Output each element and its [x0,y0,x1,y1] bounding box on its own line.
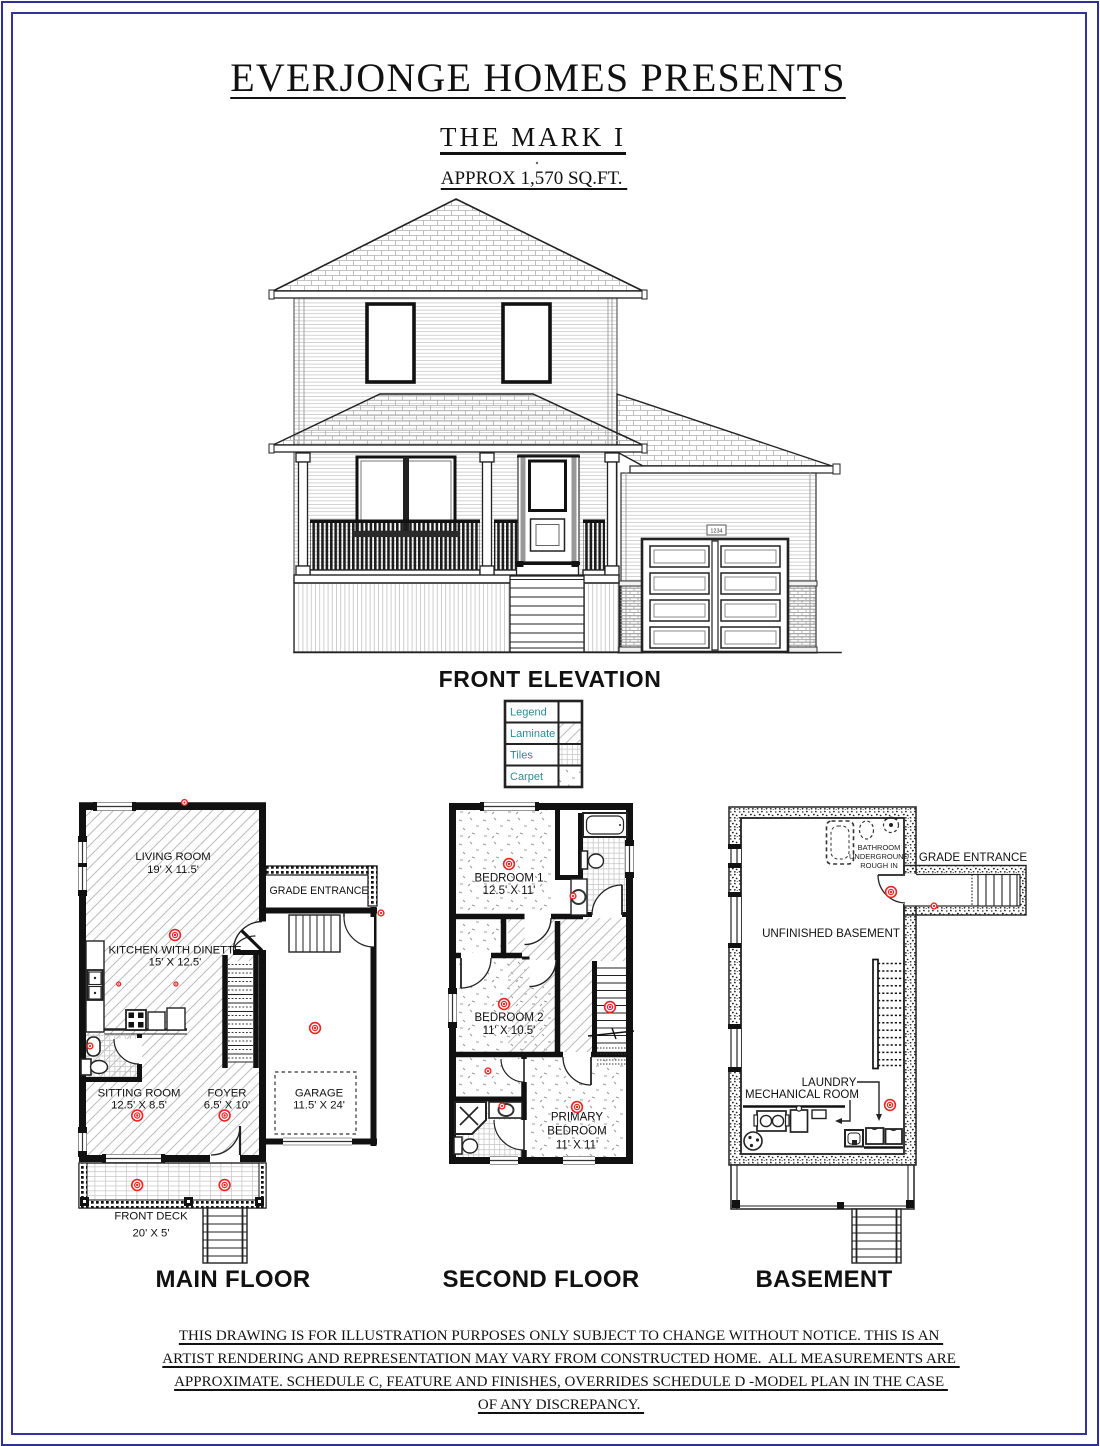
svg-text:BATHROOM: BATHROOM [858,843,901,852]
svg-text:BEDROOM 2: BEDROOM 2 [474,1012,543,1024]
svg-text:11' X 11': 11' X 11' [556,1140,598,1152]
svg-text:SITTING ROOM: SITTING ROOM [98,1088,181,1100]
svg-text:UNDERGROUND: UNDERGROUND [849,852,910,861]
svg-text:Laminate: Laminate [510,728,555,740]
svg-text:FRONT DECK: FRONT DECK [114,1211,188,1223]
svg-text:12.5' X 11': 12.5' X 11' [483,885,536,897]
svg-text:15' X 12.5': 15' X 12.5' [149,957,202,969]
svg-text:PRIMARY: PRIMARY [551,1112,604,1124]
svg-text:Legend: Legend [510,707,547,719]
svg-text:GRADE ENTRANCE: GRADE ENTRANCE [270,885,369,897]
svg-text:GARAGE: GARAGE [295,1088,344,1100]
svg-text:Tiles: Tiles [510,750,533,762]
svg-text:UNFINISHED BASEMENT: UNFINISHED BASEMENT [762,927,900,940]
svg-text:Carpet: Carpet [510,771,543,783]
svg-text:MECHANICAL ROOM: MECHANICAL ROOM [745,1089,859,1101]
svg-text:20' X 5': 20' X 5' [133,1228,170,1240]
svg-text:LIVING ROOM: LIVING ROOM [135,851,210,863]
svg-text:KITCHEN WITH DINETTE: KITCHEN WITH DINETTE [108,945,242,957]
svg-text:6.5' X 10': 6.5' X 10' [204,1100,250,1112]
svg-text:11.5' X 24': 11.5' X 24' [293,1100,345,1112]
svg-text:19' X 11.5': 19' X 11.5' [147,864,199,876]
svg-text:LAUNDRY: LAUNDRY [802,1077,857,1089]
svg-text:1234: 1234 [710,529,722,535]
svg-text:11' X 10.5': 11' X 10.5' [483,1025,536,1037]
svg-text:BEDROOM: BEDROOM [547,1126,606,1138]
svg-text:GRADE ENTRANCE: GRADE ENTRANCE [919,851,1027,864]
svg-text:FOYER: FOYER [208,1088,247,1100]
svg-text:BEDROOM 1: BEDROOM 1 [474,873,543,885]
svg-text:ROUGH IN: ROUGH IN [860,861,898,870]
